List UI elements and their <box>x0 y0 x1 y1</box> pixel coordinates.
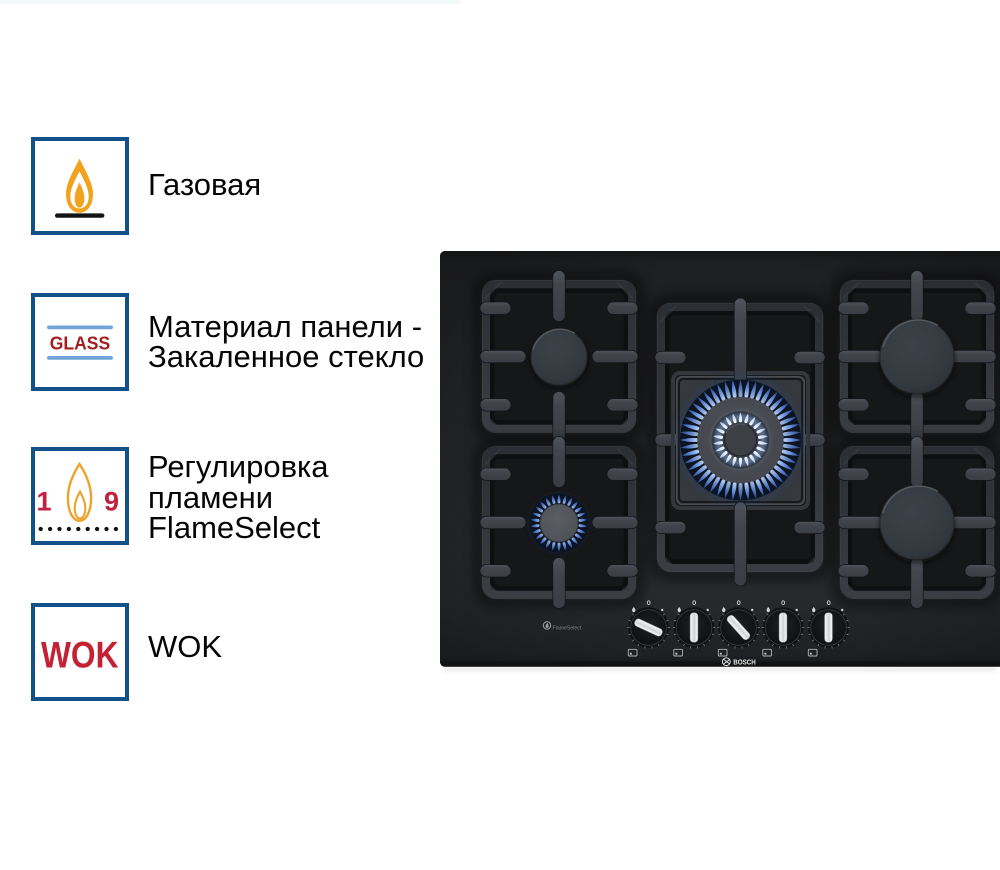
svg-text:GLASS: GLASS <box>50 334 110 354</box>
svg-text:1: 1 <box>37 487 52 517</box>
svg-text:9: 9 <box>104 487 119 517</box>
svg-text:FlameSelect: FlameSelect <box>553 625 582 631</box>
svg-text:WOK: WOK <box>41 634 119 675</box>
svg-text:BOSCH: BOSCH <box>733 658 756 667</box>
